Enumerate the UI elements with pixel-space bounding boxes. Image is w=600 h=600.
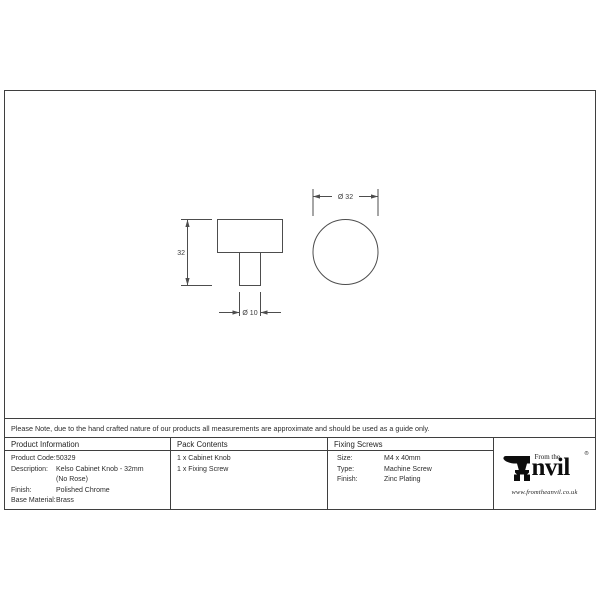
product-information-body: Product Code: 50329 Description: Kelso C… — [5, 451, 170, 507]
product-information-header: Product Information — [5, 438, 170, 451]
anvil-icon — [501, 454, 532, 483]
note-row: Please Note, due to the hand crafted nat… — [5, 418, 595, 437]
arrow-left-icon — [313, 194, 320, 198]
field-value: Kelso Cabinet Knob - 32mm — [56, 465, 144, 476]
front-view — [313, 189, 378, 285]
brand-logo-cell: From the nvil ® www.fromtheanvil.co.uk — [493, 438, 595, 509]
pack-contents-section: Pack Contents 1 x Cabinet Knob 1 x Fixin… — [170, 438, 327, 509]
list-item: 1 x Cabinet Knob — [177, 454, 327, 465]
fixing-screws-header: Fixing Screws — [328, 438, 493, 451]
title-block: Product Information Product Code: 50329 … — [5, 437, 595, 509]
field-value: Machine Screw — [384, 465, 432, 476]
table-row: (No Rose) — [11, 475, 170, 486]
field-value: Polished Chrome — [56, 486, 110, 497]
field-value: 50329 — [56, 454, 75, 465]
table-row: Product Code: 50329 — [11, 454, 170, 465]
front-diameter-label: Ø 32 — [338, 194, 353, 201]
product-information-section: Product Information Product Code: 50329 … — [5, 438, 170, 509]
side-view-knob-head — [218, 220, 283, 253]
registered-trademark-icon: ® — [584, 451, 588, 457]
pack-contents-header: Pack Contents — [171, 438, 327, 451]
table-row: Description: Kelso Cabinet Knob - 32mm — [11, 465, 170, 476]
field-label — [11, 475, 56, 486]
fixing-screws-section: Fixing Screws Size: M4 x 40mm Type: Mach… — [327, 438, 493, 509]
brand-website: www.fromtheanvil.co.uk — [501, 489, 589, 496]
stem-diameter-label: Ø 10 — [242, 310, 257, 317]
field-label: Type: — [337, 465, 384, 476]
spec-sheet-frame: 32 Ø 10 Ø 32 Please Note, due to the han… — [4, 90, 596, 510]
field-label: Description: — [11, 465, 56, 476]
arrow-right-icon — [233, 310, 240, 314]
field-value: M4 x 40mm — [384, 454, 421, 465]
table-row: Type: Machine Screw — [337, 465, 493, 476]
from-the-anvil-logo: From the nvil ® www.fromtheanvil.co.uk — [501, 449, 589, 499]
pack-contents-body: 1 x Cabinet Knob 1 x Fixing Screw — [171, 451, 327, 475]
list-item: 1 x Fixing Screw — [177, 465, 327, 476]
field-value: (No Rose) — [56, 475, 88, 486]
front-view-knob-circle — [313, 220, 378, 285]
table-row: Finish: Zinc Plating — [337, 475, 493, 486]
arrow-up-icon — [185, 220, 189, 228]
field-label: Finish: — [11, 486, 56, 497]
brand-main-text: nvil — [532, 455, 570, 480]
field-label: Size: — [337, 454, 384, 465]
arrow-down-icon — [185, 278, 189, 286]
arrow-left-icon — [261, 310, 268, 314]
note-text: Please Note, due to the hand crafted nat… — [11, 424, 430, 433]
fixing-screws-body: Size: M4 x 40mm Type: Machine Screw Fini… — [328, 451, 493, 486]
field-label: Product Code: — [11, 454, 56, 465]
side-view-knob-stem — [240, 253, 261, 286]
arrow-right-icon — [371, 194, 378, 198]
field-value: Zinc Plating — [384, 475, 421, 486]
table-row: Finish: Polished Chrome — [11, 486, 170, 497]
field-value: Brass — [56, 496, 74, 507]
table-row: Base Material: Brass — [11, 496, 170, 507]
field-label: Finish: — [337, 475, 384, 486]
drawing-svg: 32 Ø 10 Ø 32 — [5, 91, 595, 418]
height-dim-label: 32 — [177, 250, 185, 257]
field-label: Base Material: — [11, 496, 56, 507]
side-view — [181, 220, 283, 317]
technical-drawing: 32 Ø 10 Ø 32 — [5, 91, 595, 418]
table-row: Size: M4 x 40mm — [337, 454, 493, 465]
